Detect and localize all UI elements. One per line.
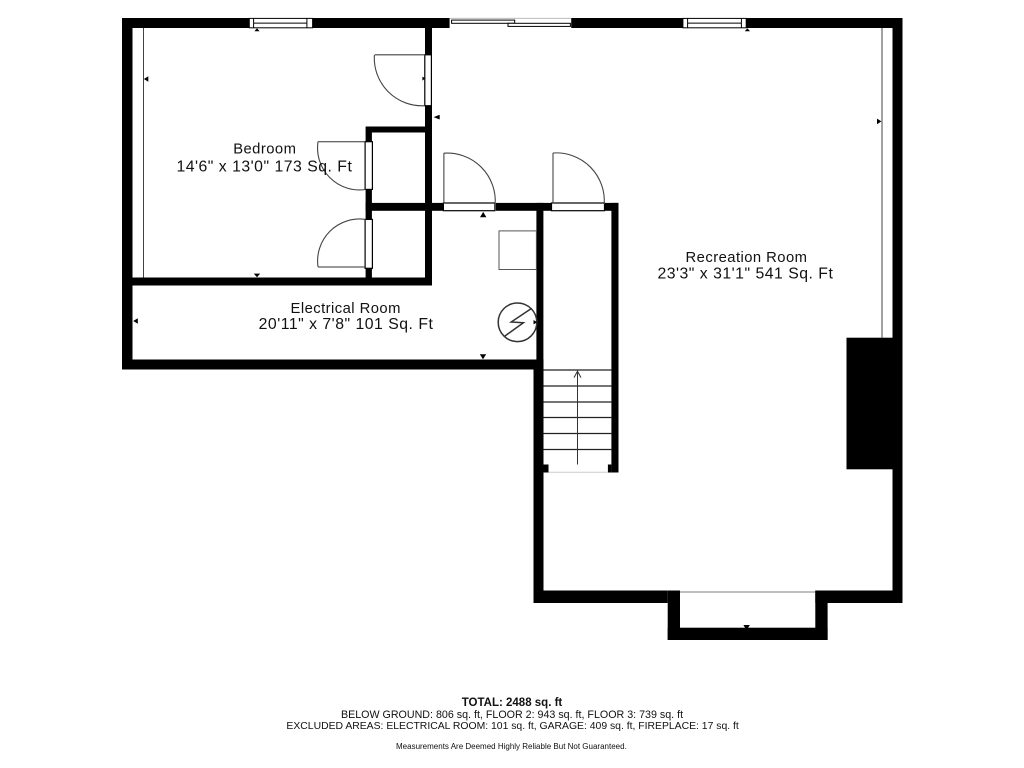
svg-text:Bedroom: Bedroom: [233, 142, 296, 158]
svg-text:Electrical Room: Electrical Room: [291, 301, 401, 317]
svg-text:BELOW GROUND: 806 sq. ft, FLOO: BELOW GROUND: 806 sq. ft, FLOOR 2: 943 s…: [341, 709, 683, 721]
svg-text:14'6" x 13'0" 173 Sq. Ft: 14'6" x 13'0" 173 Sq. Ft: [176, 158, 352, 175]
svg-text:Recreation Room: Recreation Room: [686, 250, 808, 266]
svg-text:Measurements Are Deemed Highly: Measurements Are Deemed Highly Reliable …: [396, 742, 627, 751]
svg-text:TOTAL: 2488 sq. ft: TOTAL: 2488 sq. ft: [462, 697, 563, 709]
svg-text:EXCLUDED AREAS: ELECTRICAL ROO: EXCLUDED AREAS: ELECTRICAL ROOM: 101 sq.…: [286, 721, 738, 732]
svg-text:23'3" x 31'1" 541 Sq. Ft: 23'3" x 31'1" 541 Sq. Ft: [657, 265, 833, 282]
svg-text:20'11" x 7'8" 101 Sq. Ft: 20'11" x 7'8" 101 Sq. Ft: [259, 316, 434, 333]
